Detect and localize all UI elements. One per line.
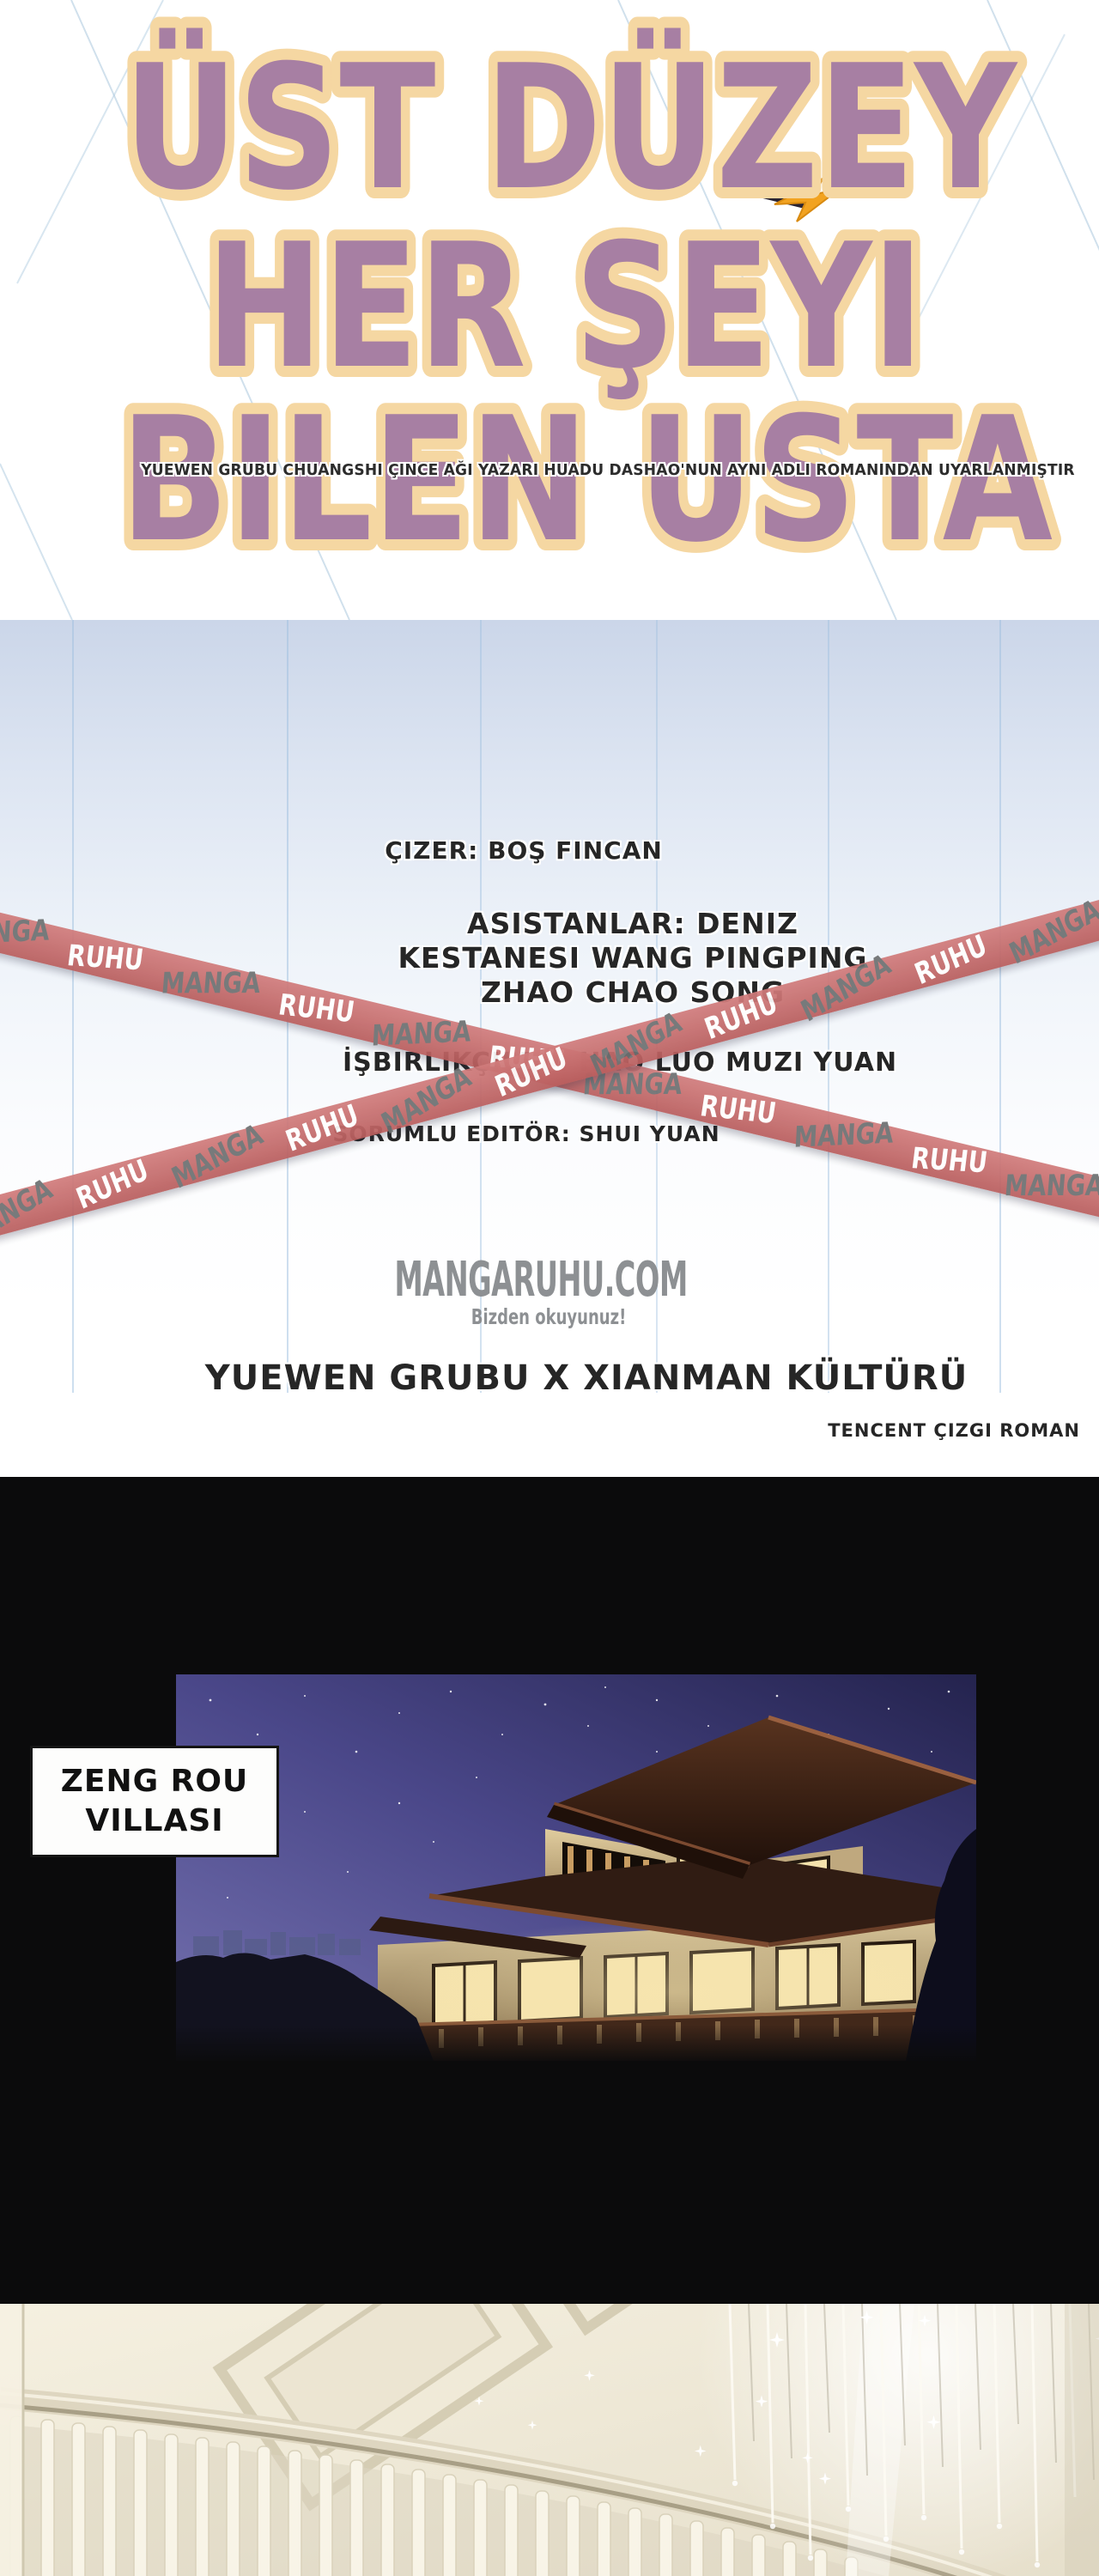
title-line-2: HER ŞEYI bbox=[206, 207, 924, 407]
caption-box: ZENG ROU VILLASI bbox=[30, 1746, 279, 1857]
ribbon-word-manga: MANGA bbox=[1004, 1169, 1099, 1203]
ribbon-word-manga: MANGA bbox=[793, 1116, 895, 1155]
site-tagline: Bizden okuyunuz! bbox=[471, 1304, 627, 1329]
ribbon-word-ruhu: RUHU bbox=[65, 939, 145, 977]
caption-line-2: VILLASI bbox=[85, 1801, 223, 1841]
caption-line-1: ZENG ROU bbox=[61, 1762, 248, 1801]
ribbon-word-manga: MANGA bbox=[160, 966, 262, 1000]
title-section: ÜST DÜZEY HER ŞEYI BILEN USTA YUEWEN GRU… bbox=[0, 0, 1099, 620]
adaptation-note: YUEWEN GRUBU CHUANGSHI ÇINCE AĞI YAZARI … bbox=[141, 461, 1075, 479]
platform-credit: TENCENT ÇIZGI ROMAN bbox=[828, 1420, 1080, 1441]
assistants-line-1: ASISTANLAR: DENIZ bbox=[398, 907, 867, 941]
ribbon-word-manga: MANGA bbox=[0, 914, 51, 952]
title-line-1: ÜST DÜZEY bbox=[124, 27, 1018, 228]
site-logo: MANGARUHU.COM bbox=[394, 1252, 687, 1308]
assistants-line-2: KESTANESI WANG PINGPING bbox=[398, 941, 867, 975]
title-line-3: BILEN USTA bbox=[120, 380, 1053, 580]
interior-photo bbox=[0, 2304, 1099, 2576]
villa-photo bbox=[176, 1674, 976, 2061]
comic-title: ÜST DÜZEY HER ŞEYI BILEN USTA bbox=[0, 0, 1099, 620]
manga-page: ÜST DÜZEY HER ŞEYI BILEN USTA YUEWEN GRU… bbox=[0, 0, 1099, 2576]
partnership-credit: YUEWEN GRUBU X XIANMAN KÜLTÜRÜ bbox=[205, 1358, 968, 1398]
staircase-chandelier-photo bbox=[0, 2304, 1099, 2576]
story-panel: ZENG ROU VILLASI bbox=[0, 1477, 1099, 2304]
artist-credit: ÇIZER: BOŞ FINCAN bbox=[385, 836, 663, 865]
ribbon-word-manga: MANGA bbox=[371, 1015, 472, 1054]
ribbon-word-ruhu: RUHU bbox=[909, 1141, 989, 1180]
